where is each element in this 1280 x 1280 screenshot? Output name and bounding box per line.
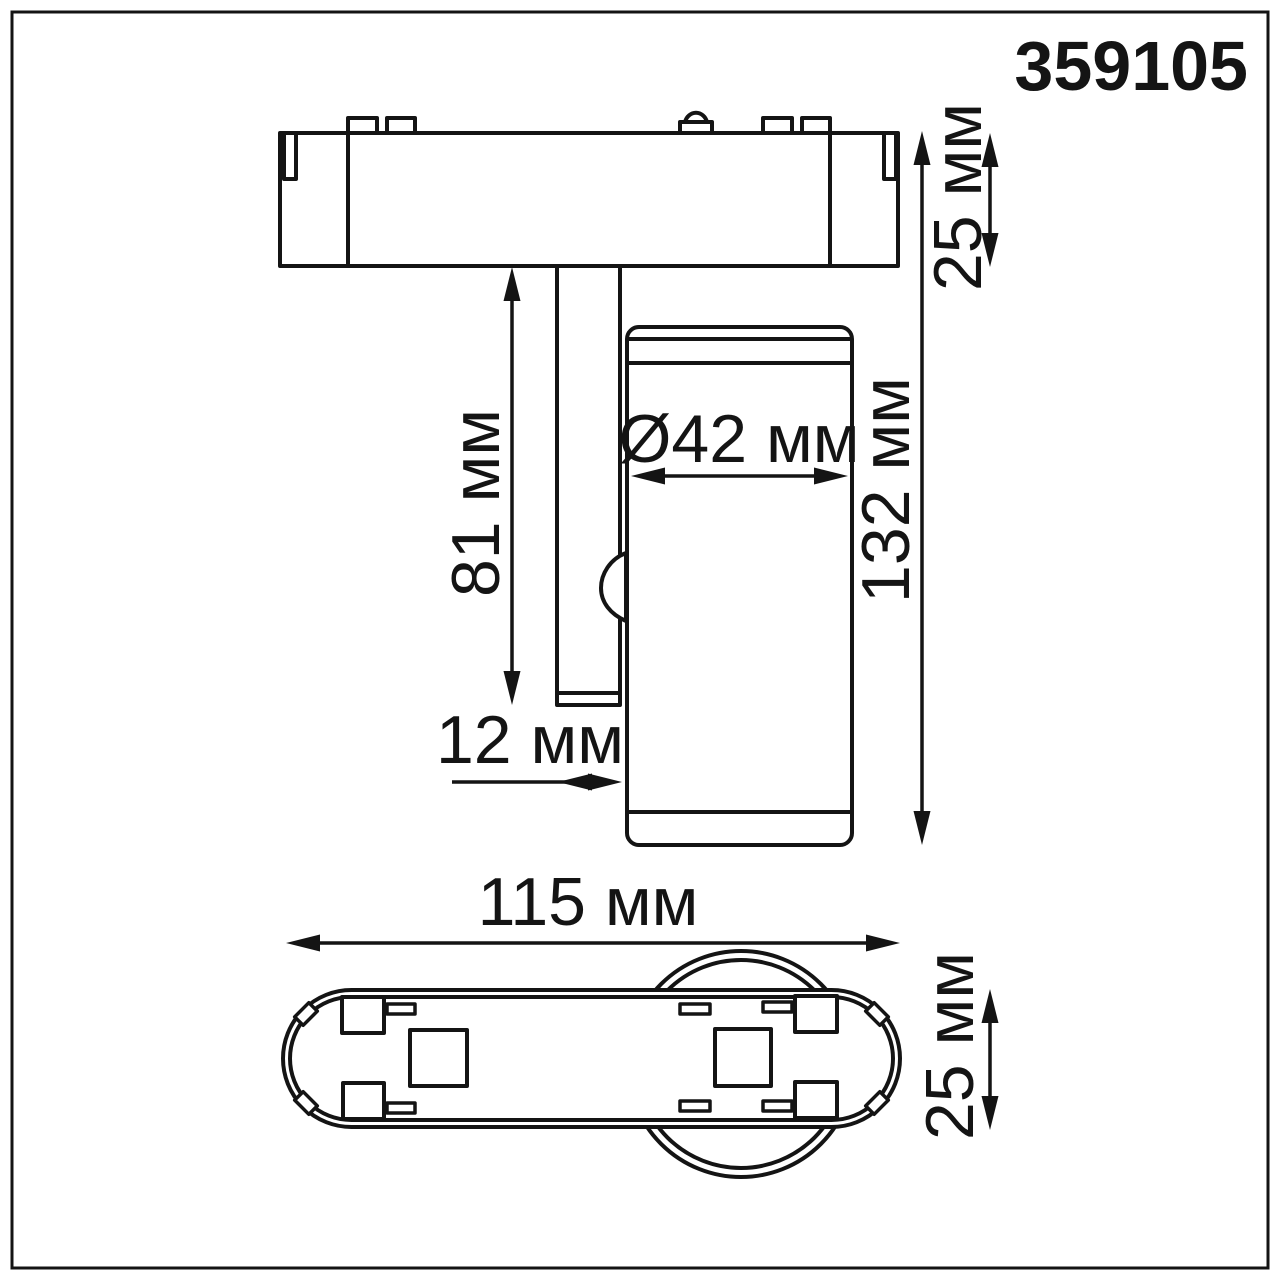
arrowhead <box>866 935 900 952</box>
dim-label-base-height: 25 мм <box>920 103 996 291</box>
dim-label-base-width: 25 мм <box>912 952 988 1140</box>
dim-base-length: 115 мм <box>286 864 900 952</box>
corner-pad <box>795 996 837 1032</box>
dim-stem-width: 12 мм <box>436 702 624 791</box>
dim-label-stem-length: 81 мм <box>438 409 514 597</box>
corner-pad <box>343 1083 384 1119</box>
dome-button-base <box>680 122 712 133</box>
drawing-page: 359105 25 мм <box>0 0 1280 1280</box>
dim-label-stem-width: 12 мм <box>436 702 624 778</box>
contact-bar <box>763 1002 792 1012</box>
dim-label-base-length: 115 мм <box>478 864 699 940</box>
magnet-square <box>715 1029 771 1086</box>
corner-pad <box>795 1082 837 1118</box>
mounting-tab <box>802 118 830 133</box>
dim-base-height: 25 мм <box>920 103 999 291</box>
side-view: 25 мм 132 мм 81 мм Ø42 мм 12 <box>280 103 999 845</box>
mounting-tab <box>387 118 415 133</box>
dim-label-head-diameter: Ø42 мм <box>619 401 860 477</box>
contact-bar <box>680 1004 710 1014</box>
contact-bar <box>387 1004 415 1014</box>
arrowhead <box>504 267 521 301</box>
corner-pad <box>342 997 384 1033</box>
mounting-tab <box>348 118 377 133</box>
base-right-slot <box>884 133 896 179</box>
contact-bar <box>680 1101 710 1111</box>
arrowhead <box>914 811 931 845</box>
dimension-drawing: 359105 25 мм <box>0 0 1280 1280</box>
dim-base-width: 25 мм <box>912 952 999 1140</box>
contact-bar <box>763 1101 792 1111</box>
magnet-square <box>410 1030 467 1086</box>
stem <box>557 266 620 705</box>
bottom-view: 115 мм 25 мм <box>283 864 999 1177</box>
dim-head-diameter: Ø42 мм <box>619 401 860 485</box>
arrowhead <box>504 671 521 705</box>
dim-stem-length: 81 мм <box>438 267 521 705</box>
contact-bar <box>387 1103 415 1113</box>
base-left-slot <box>284 133 296 179</box>
mounting-tab <box>763 118 792 133</box>
track-adapter-base <box>280 133 898 266</box>
product-code: 359105 <box>1014 27 1248 105</box>
arrowhead <box>286 935 320 952</box>
